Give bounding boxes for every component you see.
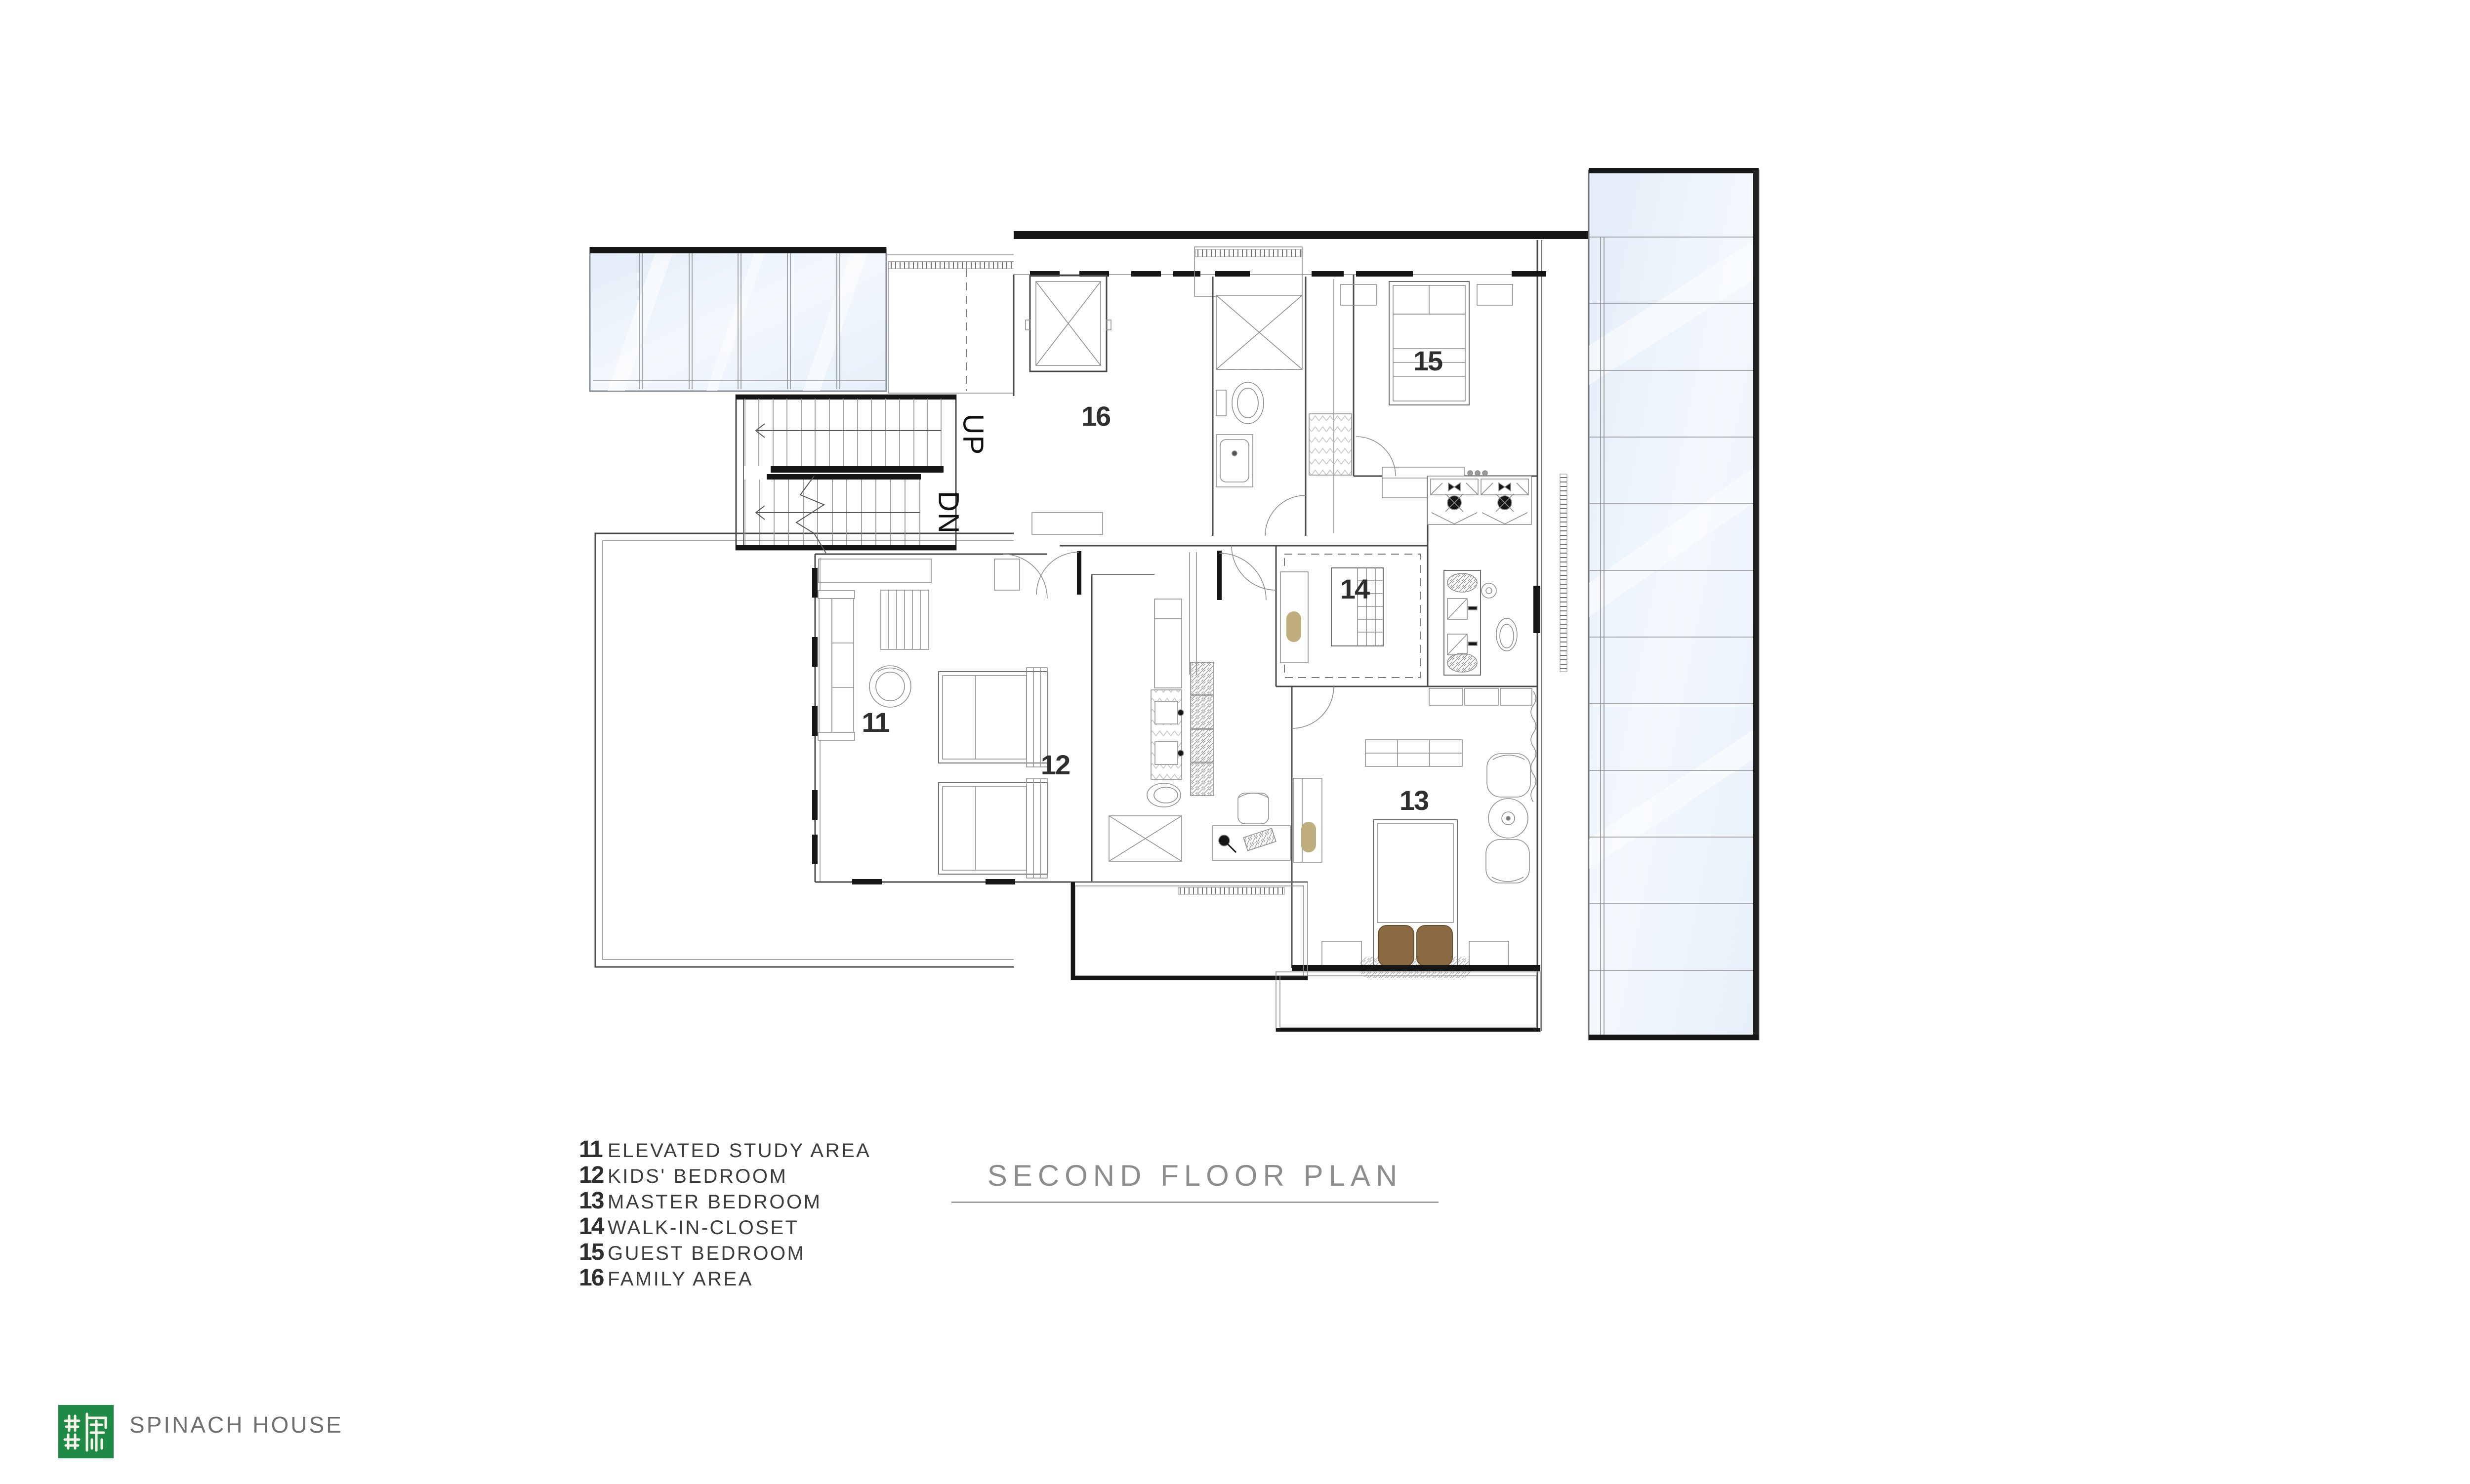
parapet-wall <box>1014 231 1602 239</box>
legend-row: 14 WALK-IN-CLOSET <box>579 1213 871 1239</box>
shower-icon <box>1109 816 1182 861</box>
legend-number: 15 <box>579 1239 608 1266</box>
dn-label: DN <box>933 491 965 534</box>
legend-row: 15 GUEST BEDROOM <box>579 1239 871 1264</box>
bookshelf-icon <box>881 590 929 649</box>
legend-label: WALK-IN-CLOSET <box>608 1217 799 1239</box>
cabinet-icon <box>1293 778 1322 862</box>
window-frame <box>1533 586 1540 633</box>
sink-icon <box>1216 435 1253 487</box>
floor-plan: .w2{stroke:#4a4a4a;stroke-width:3;fill:n… <box>0 0 2470 1482</box>
legend-number: 11 <box>579 1136 608 1163</box>
vanity-icon <box>1428 471 1531 524</box>
chair-icon <box>1238 793 1269 824</box>
stair-treads-upper <box>745 399 941 466</box>
room-label-12: 12 <box>1041 749 1070 780</box>
legend-label: KIDS' BEDROOM <box>608 1165 787 1188</box>
legend-label: MASTER BEDROOM <box>608 1191 822 1213</box>
toilet-icon <box>1147 783 1181 807</box>
legend-label: ELEVATED STUDY AREA <box>608 1140 871 1162</box>
legend-number: 16 <box>579 1264 608 1291</box>
roof-deck <box>888 262 1031 393</box>
room-label-16: 16 <box>1081 401 1111 432</box>
desk-icon <box>1213 826 1290 860</box>
page: .w2{stroke:#4a4a4a;stroke-width:3;fill:n… <box>0 0 2470 1482</box>
room-label-15: 15 <box>1413 345 1442 376</box>
up-label: UP <box>957 414 989 456</box>
legend-label: FAMILY AREA <box>608 1268 753 1290</box>
legend-number: 14 <box>579 1213 608 1240</box>
staircase: UP DN <box>736 395 989 553</box>
vanity-icon <box>1151 690 1184 779</box>
legend-label: GUEST BEDROOM <box>608 1243 805 1265</box>
pillow <box>1417 925 1452 966</box>
room-label-14: 14 <box>1340 573 1370 604</box>
chair-icon <box>1486 840 1529 883</box>
round-chair-icon <box>869 666 911 707</box>
curtain-wall <box>1589 168 1759 1040</box>
cabinet-row <box>1429 688 1532 705</box>
shower-icon <box>1216 295 1302 369</box>
door-jamb <box>1077 551 1081 595</box>
legend-number: 12 <box>579 1162 608 1189</box>
logo-seal <box>58 1405 114 1458</box>
chair-icon <box>1487 754 1530 797</box>
logo <box>58 1405 114 1458</box>
master-deck <box>1276 972 1540 1032</box>
pillow <box>1378 925 1414 966</box>
louver-band <box>1560 474 1567 672</box>
legend-row: 12 KIDS' BEDROOM <box>579 1162 871 1187</box>
sofa-icon <box>818 591 855 740</box>
legend-row: 13 MASTER BEDROOM <box>579 1187 871 1213</box>
brand-name: SPINACH HOUSE <box>129 1411 343 1438</box>
page-title: SECOND FLOOR PLAN <box>988 1159 1402 1192</box>
legend: 11 ELEVATED STUDY AREA 12 KIDS' BEDROOM … <box>579 1136 871 1290</box>
title-underline: SECOND FLOOR PLAN <box>951 1159 1439 1203</box>
closet-cabinet <box>1280 572 1308 663</box>
table-icon <box>1488 799 1528 838</box>
room-label-11: 11 <box>862 707 889 738</box>
toilet-icon <box>1496 618 1517 651</box>
dresser-icon <box>1365 740 1462 766</box>
door-jamb <box>1217 551 1222 600</box>
room-label-13: 13 <box>1400 785 1429 816</box>
legend-row: 11 ELEVATED STUDY AREA <box>579 1136 871 1162</box>
legend-row: 16 FAMILY AREA <box>579 1264 871 1290</box>
legend-number: 13 <box>579 1187 608 1214</box>
